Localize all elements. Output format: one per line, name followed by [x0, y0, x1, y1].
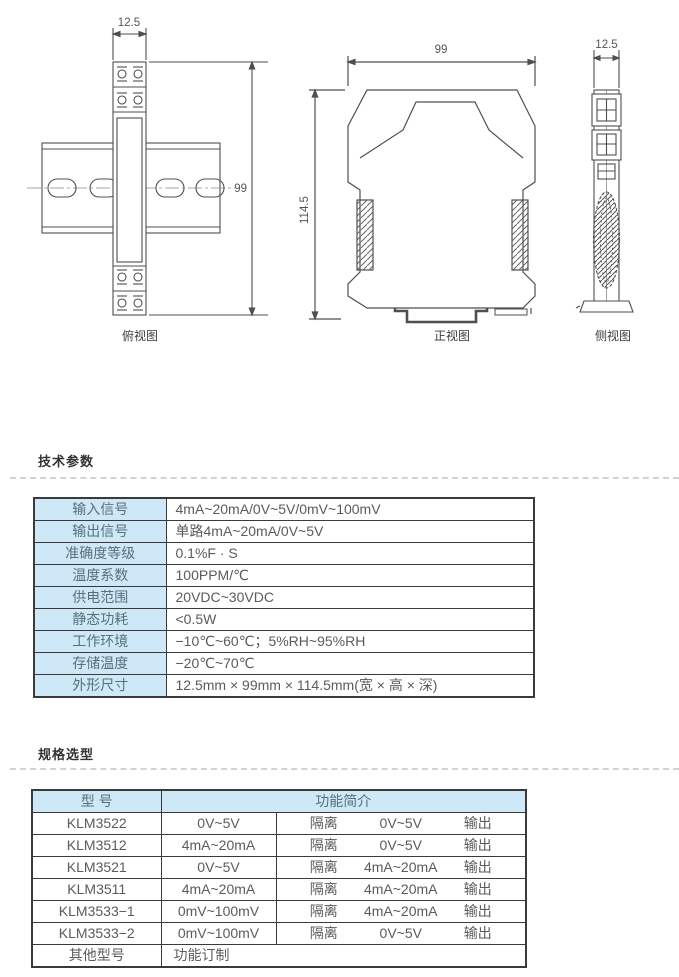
section-separator: [10, 477, 679, 479]
front-view-width-dim: 99: [435, 44, 448, 56]
param-value: 单路4mA~20mA/0V~5V: [166, 521, 534, 543]
iso-label: 隔离: [310, 879, 338, 900]
side-view-width-dim: 12.5: [595, 39, 617, 51]
table-row: 温度系数100PPM/℃: [34, 565, 534, 587]
param-label: 外形尺寸: [34, 675, 166, 698]
output-label: 输出: [464, 923, 492, 944]
output-signal: 4mA~20mA: [345, 857, 457, 878]
table-row: 外形尺寸12.5mm × 99mm × 114.5mm(宽 × 高 × 深): [34, 675, 534, 698]
param-label: 温度系数: [34, 565, 166, 587]
table-row: 输入信号4mA~20mA/0V~5V/0mV~100mV: [34, 498, 534, 521]
input-cell: 0mV~100mV: [161, 901, 276, 923]
param-label: 存储温度: [34, 653, 166, 675]
table-row: 工作环境−10℃~60℃；5%RH~95%RH: [34, 631, 534, 653]
param-value: −10℃~60℃；5%RH~95%RH: [166, 631, 534, 653]
top-view-width-dim: 12.5: [118, 17, 140, 29]
model-cell: KLM3522: [32, 813, 161, 835]
model-column-header: 型 号: [32, 790, 161, 813]
iso-label: 隔离: [310, 923, 338, 944]
output-label: 输出: [464, 813, 492, 834]
output-signal: 4mA~20mA: [345, 901, 457, 922]
table-row: 其他型号 功能订制: [32, 945, 526, 968]
datasheet-page: 12.5 99: [0, 0, 679, 977]
output-cell: 隔离4mA~20mA输出: [276, 879, 526, 901]
param-value: 0.1%F · S: [166, 543, 534, 565]
model-cell: 其他型号: [32, 945, 161, 968]
front-view-drawing: 99 114.5: [295, 38, 560, 323]
input-cell: 0mV~100mV: [161, 923, 276, 945]
output-signal: 0V~5V: [345, 813, 457, 834]
iso-label: 隔离: [310, 813, 338, 834]
input-cell: 4mA~20mA: [161, 879, 276, 901]
param-label: 输入信号: [34, 498, 166, 521]
input-cell: 4mA~20mA: [161, 835, 276, 857]
model-selection-table: 型 号 功能简介 KLM3522 0V~5V 隔离0V~5V输出 KLM3512…: [31, 789, 527, 968]
table-row: KLM3533−2 0mV~100mV 隔离0V~5V输出: [32, 923, 526, 945]
tech-params-table: 输入信号4mA~20mA/0V~5V/0mV~100mV 输出信号单路4mA~2…: [33, 497, 535, 698]
model-cell: KLM3533−2: [32, 923, 161, 945]
param-value: 12.5mm × 99mm × 114.5mm(宽 × 高 × 深): [166, 675, 534, 698]
table-row: KLM3522 0V~5V 隔离0V~5V输出: [32, 813, 526, 835]
top-view-height-dim: 99: [234, 183, 247, 195]
tech-params-heading: 技术参数: [38, 451, 94, 470]
param-label: 输出信号: [34, 521, 166, 543]
table-header-row: 型 号 功能简介: [32, 790, 526, 813]
custom-function-cell: 功能订制: [161, 945, 526, 968]
output-label: 输出: [464, 879, 492, 900]
param-value: <0.5W: [166, 609, 534, 631]
table-row: 静态功耗<0.5W: [34, 609, 534, 631]
output-signal: 0V~5V: [345, 835, 457, 856]
param-value: −20℃~70℃: [166, 653, 534, 675]
table-row: KLM3512 4mA~20mA 隔离0V~5V输出: [32, 835, 526, 857]
iso-label: 隔离: [310, 835, 338, 856]
model-cell: KLM3512: [32, 835, 161, 857]
input-cell: 0V~5V: [161, 813, 276, 835]
side-view-caption: 侧视图: [578, 327, 648, 344]
table-row: KLM3521 0V~5V 隔离4mA~20mA输出: [32, 857, 526, 879]
output-label: 输出: [464, 857, 492, 878]
top-view-drawing: 12.5 99: [20, 8, 280, 323]
model-cell: KLM3511: [32, 879, 161, 901]
output-label: 输出: [464, 901, 492, 922]
output-cell: 隔离0V~5V输出: [276, 923, 526, 945]
iso-label: 隔离: [310, 857, 338, 878]
top-view-caption: 俯视图: [105, 327, 175, 344]
table-row: KLM3533−1 0mV~100mV 隔离4mA~20mA输出: [32, 901, 526, 923]
table-row: 准确度等级0.1%F · S: [34, 543, 534, 565]
iso-label: 隔离: [310, 901, 338, 922]
model-cell: KLM3533−1: [32, 901, 161, 923]
dimension-drawings: 12.5 99: [0, 0, 679, 350]
param-label: 供电范围: [34, 587, 166, 609]
param-value: 100PPM/℃: [166, 565, 534, 587]
param-label: 准确度等级: [34, 543, 166, 565]
output-cell: 隔离0V~5V输出: [276, 813, 526, 835]
table-row: 输出信号单路4mA~20mA/0V~5V: [34, 521, 534, 543]
table-row: 存储温度−20℃~70℃: [34, 653, 534, 675]
output-signal: 0V~5V: [345, 923, 457, 944]
param-label: 静态功耗: [34, 609, 166, 631]
output-cell: 隔离0V~5V输出: [276, 835, 526, 857]
front-view-height-dim: 114.5: [299, 196, 311, 224]
front-view-caption: 正视图: [417, 327, 487, 344]
param-value: 4mA~20mA/0V~5V/0mV~100mV: [166, 498, 534, 521]
section-separator: [10, 768, 679, 770]
spec-selection-heading: 规格选型: [38, 744, 94, 763]
model-cell: KLM3521: [32, 857, 161, 879]
output-cell: 隔离4mA~20mA输出: [276, 901, 526, 923]
side-view-drawing: 12.5: [572, 30, 652, 325]
table-row: KLM3511 4mA~20mA 隔离4mA~20mA输出: [32, 879, 526, 901]
table-row: 供电范围20VDC~30VDC: [34, 587, 534, 609]
input-cell: 0V~5V: [161, 857, 276, 879]
param-value: 20VDC~30VDC: [166, 587, 534, 609]
function-column-header: 功能简介: [161, 790, 526, 813]
output-signal: 4mA~20mA: [345, 879, 457, 900]
output-label: 输出: [464, 835, 492, 856]
output-cell: 隔离4mA~20mA输出: [276, 857, 526, 879]
param-label: 工作环境: [34, 631, 166, 653]
